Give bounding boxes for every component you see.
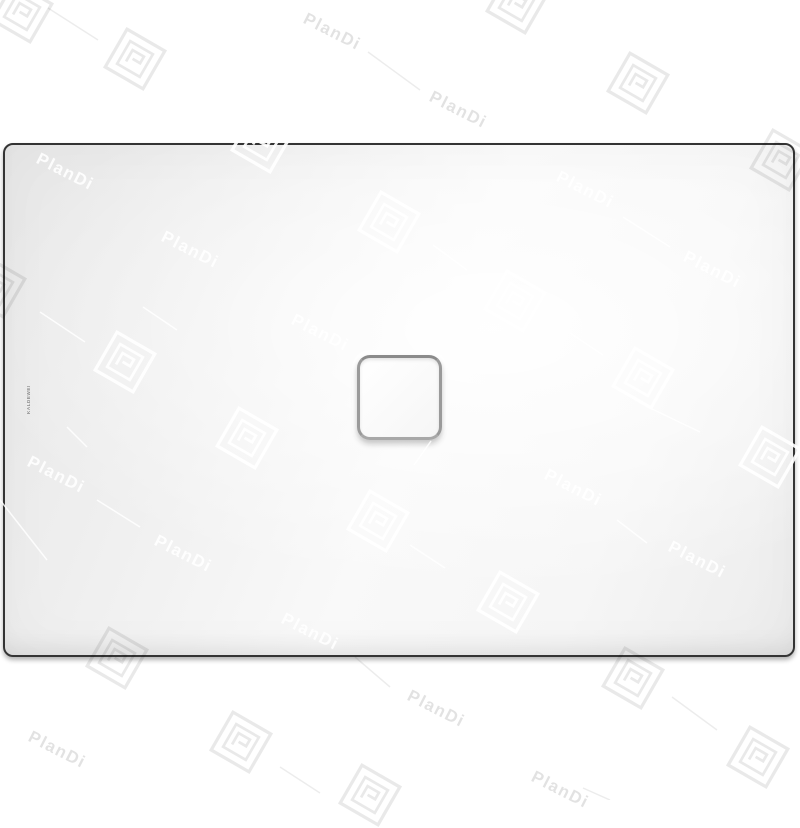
watermark-line xyxy=(583,788,610,800)
watermarked-product-photo: { "page":{"background":"#ffffff"}, "prod… xyxy=(0,0,800,800)
watermark-logo-icon xyxy=(337,762,403,828)
watermark-line xyxy=(48,8,98,40)
drain-cover xyxy=(357,355,442,440)
watermark-logo-icon xyxy=(0,0,55,45)
watermark-text: PlanDi xyxy=(528,767,592,813)
watermark-line xyxy=(368,52,420,90)
watermark-logo-icon xyxy=(605,50,671,116)
watermark-line xyxy=(672,697,717,730)
watermark-logo-icon xyxy=(484,0,550,36)
watermark-logo-icon xyxy=(102,26,168,92)
watermark-logo-icon xyxy=(208,709,274,775)
watermark-logo-icon xyxy=(725,724,791,790)
watermark-text: PlanDi xyxy=(300,9,364,55)
brand-marking: KALDEWEI xyxy=(24,386,33,414)
watermark-text: PlanDi xyxy=(25,727,89,773)
watermark-line xyxy=(280,767,320,793)
watermark-text: PlanDi xyxy=(426,87,490,133)
watermark-text: PlanDi xyxy=(404,686,468,732)
watermark-line xyxy=(355,657,390,687)
